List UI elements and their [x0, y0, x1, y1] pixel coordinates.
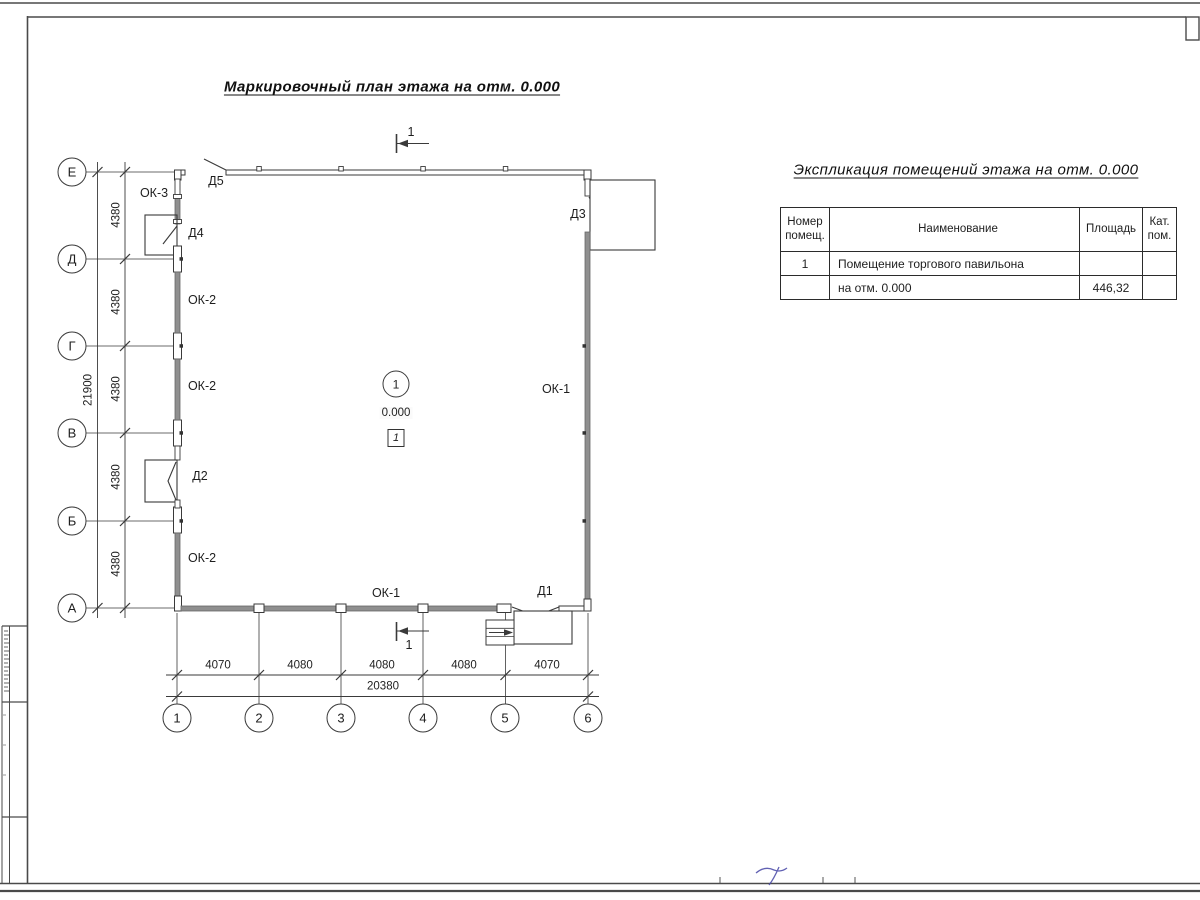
cell-room-name: Помещение торгового павильона [830, 252, 1080, 276]
cell-room-number: 1 [781, 252, 830, 276]
cell-room-area [1080, 252, 1143, 276]
mark-d2: Д2 [192, 470, 207, 483]
pen-mark [756, 867, 787, 885]
header-room-number: Номер помещ. [781, 208, 830, 252]
dim-col-4: 4080 [451, 660, 477, 672]
axis-bubble-row-e: Е [58, 158, 87, 187]
cell-room-area-2: 446,32 [1080, 276, 1143, 300]
dim-col-2: 4080 [287, 660, 313, 672]
cell-room-cat [1143, 252, 1177, 276]
dim-col-3: 4080 [369, 660, 395, 672]
axis-bubble-col-5: 5 [491, 704, 520, 733]
dim-row-5: 4380 [111, 551, 123, 577]
cell-room-name-2: на отм. 0.000 [830, 276, 1080, 300]
dim-row-2: 4380 [111, 289, 123, 315]
dim-col-total: 20380 [367, 681, 399, 693]
axis-bubble-col-1: 1 [163, 704, 192, 733]
dim-row-3: 4380 [111, 376, 123, 402]
mark-ok2-1: ОК-2 [188, 294, 216, 307]
dim-col-5: 4070 [534, 660, 560, 672]
axis-bubble-col-2: 2 [245, 704, 274, 733]
mark-d3: Д3 [570, 208, 585, 221]
dim-row-4: 4380 [111, 464, 123, 490]
dim-col-1: 4070 [205, 660, 231, 672]
mark-d5: Д5 [208, 175, 223, 188]
room-number-bubble: 1 [383, 371, 410, 398]
section-label-top: 1 [408, 126, 415, 139]
header-name: Наименование [830, 208, 1080, 252]
axis-bubble-row-b: Б [58, 507, 87, 536]
header-category: Кат. пом. [1143, 208, 1177, 252]
explication-row-2: на отм. 0.000 446,32 [781, 276, 1177, 300]
mark-d4: Д4 [188, 227, 203, 240]
mark-ok3: ОК-3 [140, 187, 168, 200]
plan-linework [0, 0, 1200, 900]
mark-ok1-bottom: ОК-1 [372, 587, 400, 600]
mark-d1: Д1 [537, 585, 552, 598]
axis-bubble-col-3: 3 [327, 704, 356, 733]
room-zone-box: 1 [388, 429, 405, 447]
dim-row-total: 21900 [83, 374, 95, 406]
mark-ok1-right: ОК-1 [542, 383, 570, 396]
axis-bubble-row-g: Г [58, 332, 87, 361]
room-elevation: 0.000 [380, 407, 413, 419]
explication-header-row: Номер помещ. Наименование Площадь Кат. п… [781, 208, 1177, 252]
explication-title: Экспликация помещений этажа на отм. 0.00… [794, 162, 1139, 179]
dim-row-1: 4380 [111, 202, 123, 228]
axis-bubble-col-6: 6 [574, 704, 603, 733]
mark-ok2-2: ОК-2 [188, 380, 216, 393]
plan-title: Маркировочный план этажа на отм. 0.000 [224, 79, 560, 96]
axis-bubble-row-v: В [58, 419, 87, 448]
explication-table: Номер помещ. Наименование Площадь Кат. п… [780, 207, 1177, 300]
axis-bubble-row-a: А [58, 594, 87, 623]
cell-room-cat-2 [1143, 276, 1177, 300]
section-label-bottom: 1 [406, 639, 413, 652]
explication-row-1: 1 Помещение торгового павильона [781, 252, 1177, 276]
cell-room-number-2 [781, 276, 830, 300]
mark-ok2-3: ОК-2 [188, 552, 216, 565]
drawing-sheet: Маркировочный план этажа на отм. 0.000 Э… [0, 0, 1200, 900]
building-walls [145, 159, 655, 645]
axis-bubble-row-d: Д [58, 245, 87, 274]
header-area: Площадь [1080, 208, 1143, 252]
axis-bubble-col-4: 4 [409, 704, 438, 733]
